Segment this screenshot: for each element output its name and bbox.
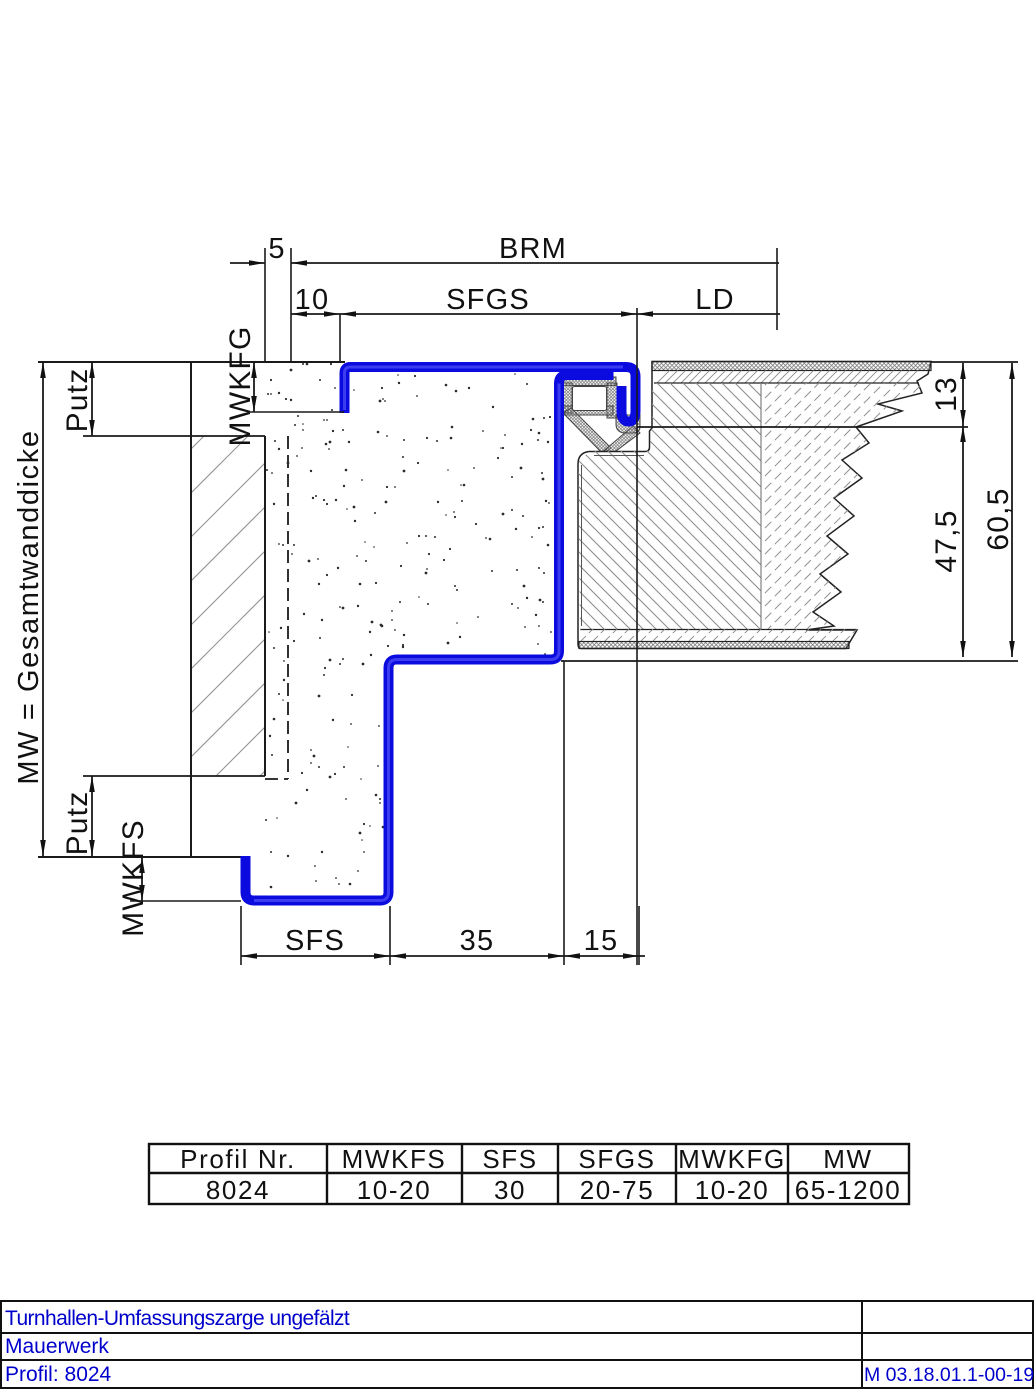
svg-text:MWKFS: MWKFS (342, 1144, 447, 1174)
svg-text:15: 15 (584, 925, 619, 957)
svg-text:SFS: SFS (285, 925, 345, 957)
svg-text:8024: 8024 (206, 1175, 270, 1205)
svg-text:10-20: 10-20 (357, 1175, 432, 1205)
svg-text:MWKFS: MWKFS (117, 819, 150, 937)
svg-text:60,5: 60,5 (982, 487, 1015, 550)
svg-text:SFGS: SFGS (578, 1144, 655, 1174)
svg-text:Turnhallen-Umfassungszarge ung: Turnhallen-Umfassungszarge ungefälzt (5, 1307, 350, 1330)
svg-text:10: 10 (295, 284, 330, 316)
svg-text:65-1200: 65-1200 (795, 1175, 902, 1205)
svg-text:SFS: SFS (482, 1144, 537, 1174)
svg-text:MW = Gesamtwanddicke: MW = Gesamtwanddicke (13, 429, 45, 784)
svg-text:LD: LD (695, 284, 734, 316)
svg-text:BRM: BRM (499, 233, 567, 265)
svg-text:13: 13 (930, 376, 963, 412)
svg-text:MWKFG: MWKFG (678, 1144, 786, 1174)
svg-text:35: 35 (460, 925, 495, 957)
svg-text:47,5: 47,5 (930, 509, 963, 572)
svg-text:10-20: 10-20 (695, 1175, 770, 1205)
svg-text:30: 30 (494, 1175, 526, 1205)
svg-text:MW: MW (823, 1144, 872, 1174)
svg-text:M 03.18.01.1-00-19: M 03.18.01.1-00-19 (864, 1364, 1034, 1386)
svg-text:20-75: 20-75 (580, 1175, 655, 1205)
svg-text:Mauerwerk: Mauerwerk (5, 1335, 109, 1358)
svg-text:Profil Nr.: Profil Nr. (180, 1144, 296, 1174)
svg-text:Profil: 8024: Profil: 8024 (5, 1363, 112, 1386)
svg-text:MWKFG: MWKFG (224, 326, 257, 447)
svg-text:SFGS: SFGS (446, 284, 530, 316)
svg-text:Putz: Putz (61, 791, 94, 856)
svg-text:Putz: Putz (61, 368, 94, 433)
svg-text:5: 5 (268, 233, 285, 265)
